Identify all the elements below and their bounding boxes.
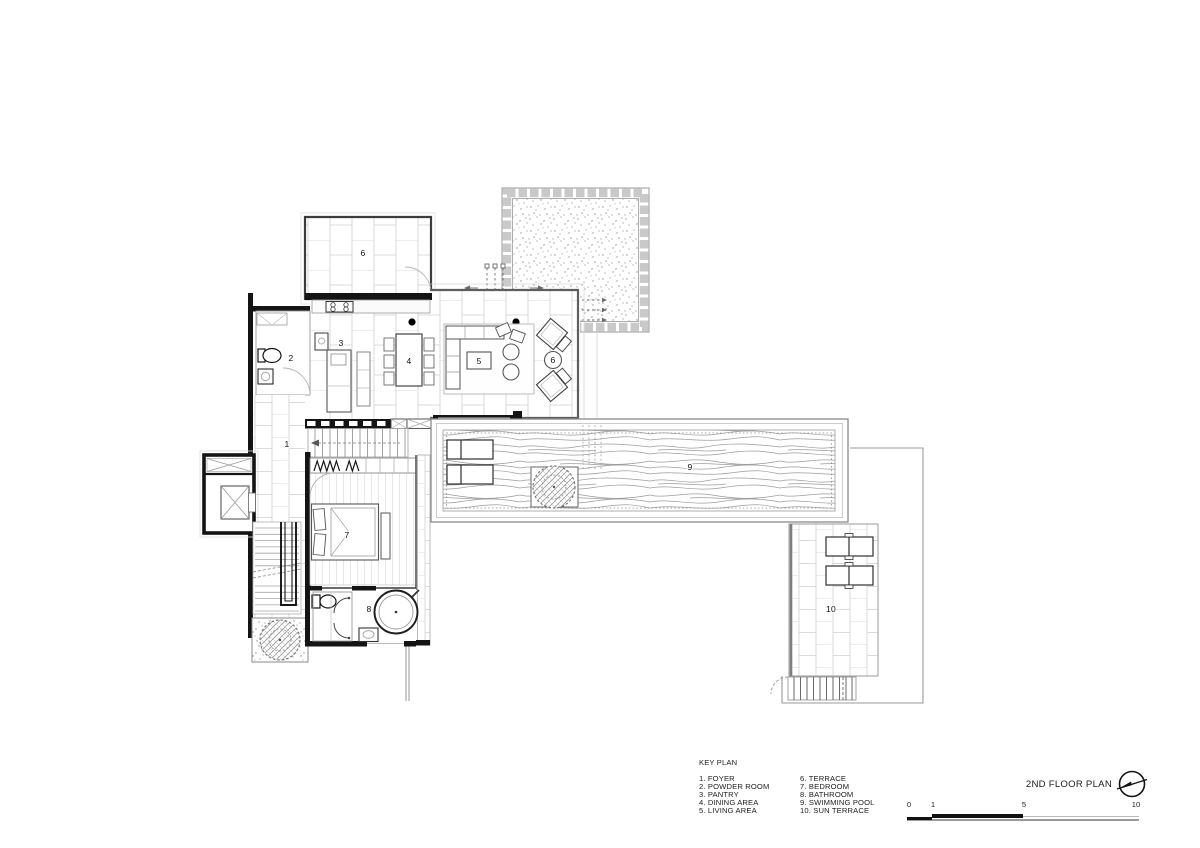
room-label-terrace-upper: 6 bbox=[360, 248, 365, 258]
drawing-title: 2ND FLOOR PLAN bbox=[1026, 779, 1112, 790]
room-label-pool: 9 bbox=[687, 462, 692, 472]
scale-tick: 10 bbox=[1132, 800, 1140, 809]
key-plan-item: 5. LIVING AREA bbox=[699, 807, 800, 815]
key-plan-item: 10. SUN TERRACE bbox=[800, 807, 875, 815]
scale-bar: 0 1 5 10 bbox=[906, 800, 1142, 826]
pool bbox=[431, 419, 848, 522]
title-block: 2ND FLOOR PLAN bbox=[1000, 779, 1112, 790]
room-label-living: 5 bbox=[476, 356, 481, 366]
scale-tick: 0 bbox=[907, 800, 911, 809]
scale-tick: 1 bbox=[931, 800, 935, 809]
room-living bbox=[444, 323, 534, 394]
stairs-main bbox=[308, 429, 408, 458]
drawing-sheet: 6 2 3 4 5 6 1 7 8 9 10 KEY PLAN 1. FOYER… bbox=[0, 0, 1200, 848]
room-label-terrace-side: 6 bbox=[550, 355, 555, 365]
room-bathroom bbox=[305, 586, 419, 701]
room-label-dining: 4 bbox=[406, 356, 411, 366]
scale-bar-segment bbox=[907, 817, 932, 820]
floor-plan-drawing: 6 2 3 4 5 6 1 7 8 9 10 bbox=[0, 0, 1200, 848]
scale-bar-segment bbox=[932, 814, 1023, 817]
key-plan: KEY PLAN 1. FOYER 2. POWDER ROOM 3. PANT… bbox=[699, 759, 875, 816]
room-label-powder: 2 bbox=[288, 353, 293, 363]
elevator bbox=[200, 451, 258, 537]
room-label-sun-terrace: 10 bbox=[826, 604, 836, 614]
room-label-bathroom: 8 bbox=[366, 604, 371, 614]
scale-tick: 5 bbox=[1022, 800, 1026, 809]
scale-bar-baseline bbox=[907, 819, 1139, 820]
key-plan-heading: KEY PLAN bbox=[699, 759, 875, 767]
planter-tree-left bbox=[252, 618, 308, 662]
room-powder bbox=[253, 306, 310, 395]
north-arrow-icon bbox=[1115, 768, 1149, 802]
room-label-pantry: 3 bbox=[338, 338, 343, 348]
room-label-foyer: 1 bbox=[284, 439, 289, 449]
scale-bar-segment bbox=[1023, 816, 1139, 818]
key-plan-column-2: 6. TERRACE 7. BEDROOM 8. BATHROOM 9. SWI… bbox=[800, 775, 875, 815]
key-plan-column-1: 1. FOYER 2. POWDER ROOM 3. PANTRY 4. DIN… bbox=[699, 775, 800, 815]
stairs-core bbox=[253, 522, 301, 614]
room-label-bedroom: 7 bbox=[344, 530, 349, 540]
